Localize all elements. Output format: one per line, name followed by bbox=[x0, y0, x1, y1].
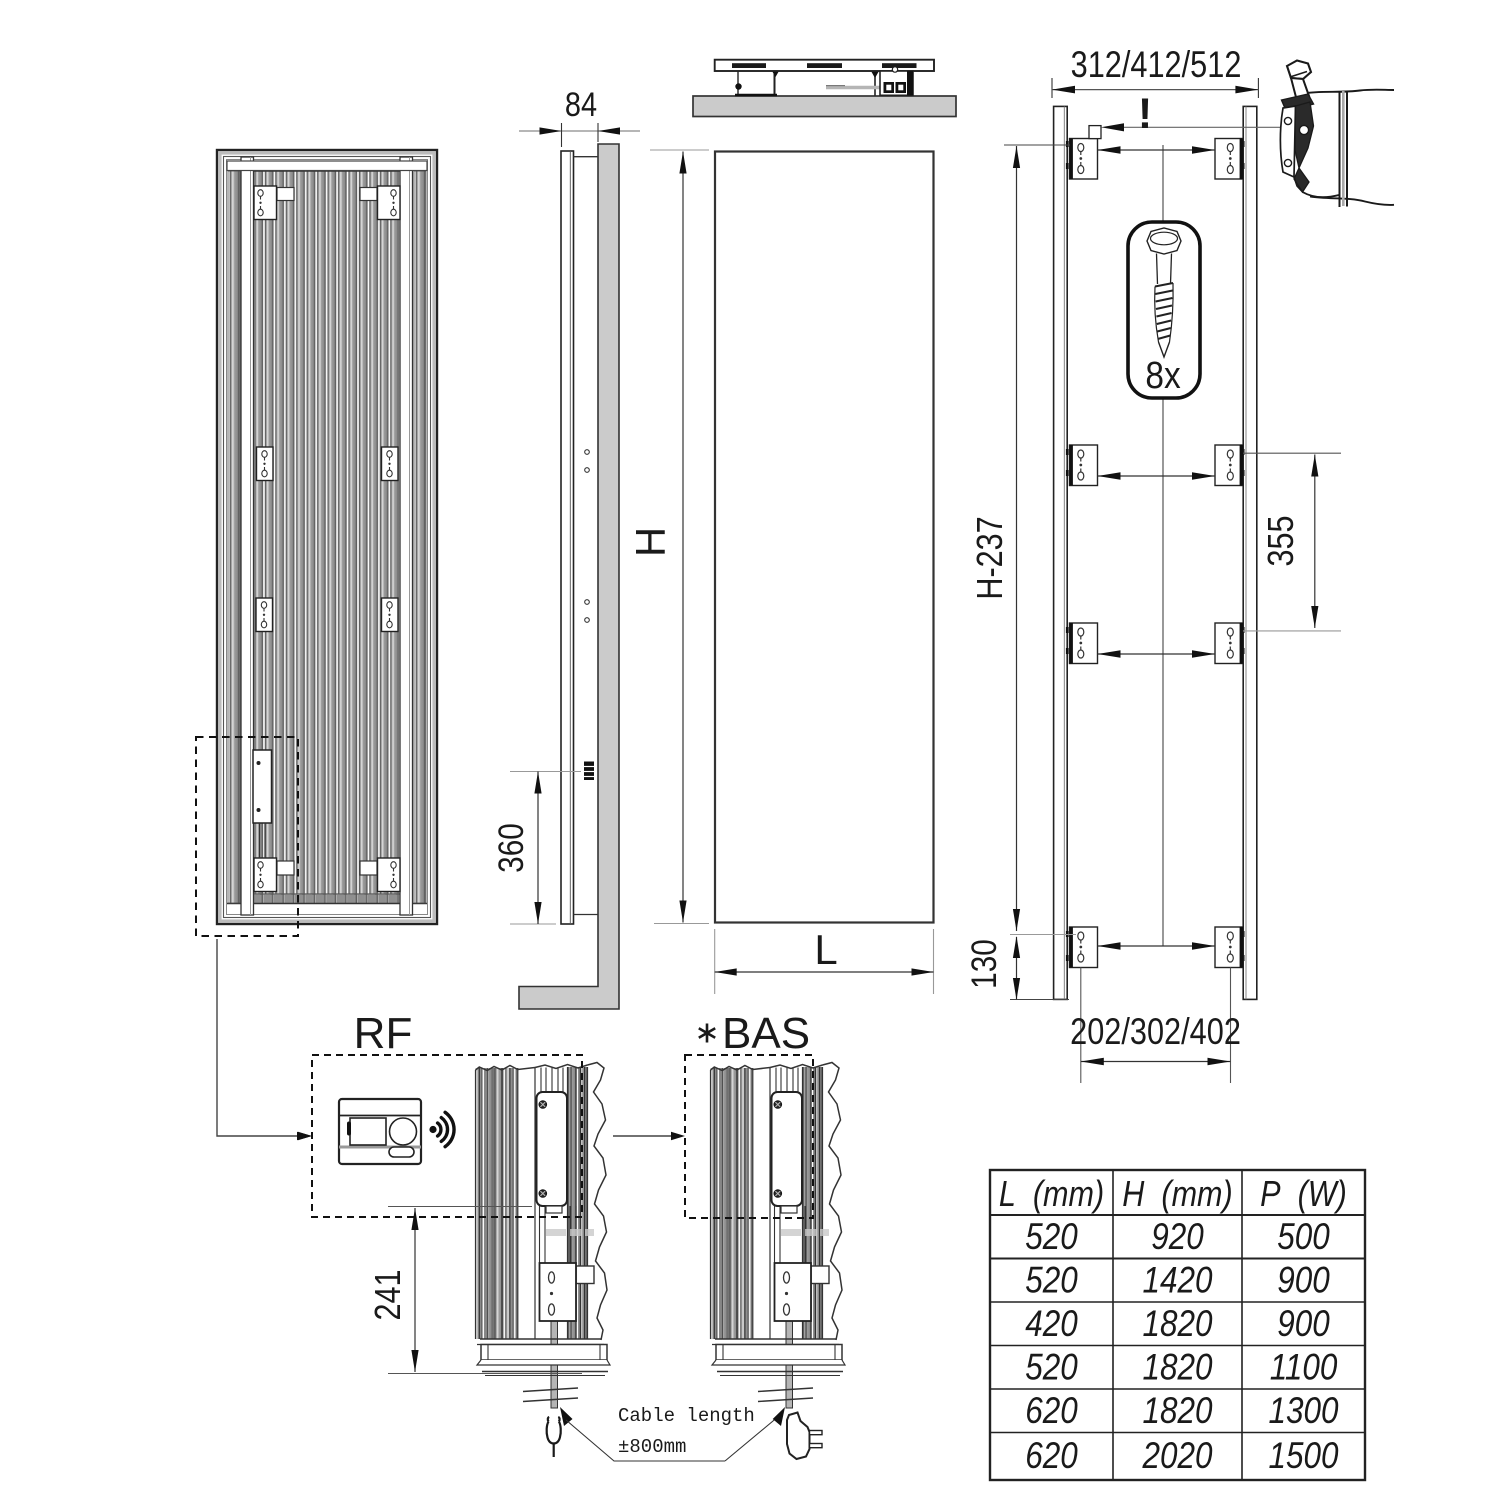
svg-text:420: 420 bbox=[1025, 1304, 1077, 1345]
svg-text:2020: 2020 bbox=[1142, 1436, 1213, 1477]
svg-text:312/412/512: 312/412/512 bbox=[1071, 44, 1242, 85]
svg-text:900: 900 bbox=[1277, 1304, 1329, 1345]
svg-text:920: 920 bbox=[1151, 1217, 1203, 1258]
svg-text:1100: 1100 bbox=[1270, 1347, 1338, 1388]
svg-text:202/302/402: 202/302/402 bbox=[1070, 1011, 1241, 1052]
svg-text:BAS: BAS bbox=[722, 1009, 810, 1058]
svg-text:1820: 1820 bbox=[1143, 1304, 1213, 1345]
svg-text:8x: 8x bbox=[1145, 354, 1180, 396]
svg-text:1300: 1300 bbox=[1269, 1391, 1339, 1432]
svg-text:1820: 1820 bbox=[1143, 1347, 1213, 1388]
svg-text:620: 620 bbox=[1025, 1391, 1077, 1432]
svg-text:900: 900 bbox=[1277, 1260, 1329, 1301]
svg-text:P (W): P (W) bbox=[1260, 1175, 1347, 1215]
svg-text:500: 500 bbox=[1277, 1217, 1329, 1258]
svg-text:84: 84 bbox=[565, 85, 597, 124]
svg-text:!: ! bbox=[1138, 90, 1152, 138]
svg-text:520: 520 bbox=[1025, 1347, 1077, 1388]
svg-text:520: 520 bbox=[1025, 1217, 1077, 1258]
svg-text:±800mm: ±800mm bbox=[618, 1436, 686, 1458]
svg-text:1820: 1820 bbox=[1143, 1391, 1213, 1432]
svg-text:H-237: H-237 bbox=[971, 516, 1011, 599]
svg-text:355: 355 bbox=[1262, 515, 1302, 566]
svg-text:L (mm): L (mm) bbox=[999, 1175, 1104, 1215]
svg-text:130: 130 bbox=[965, 939, 1004, 989]
svg-text:620: 620 bbox=[1025, 1436, 1077, 1477]
svg-text:Cable length: Cable length bbox=[618, 1405, 755, 1427]
svg-text:1420: 1420 bbox=[1143, 1260, 1213, 1301]
svg-text:L: L bbox=[814, 926, 837, 973]
svg-text:1500: 1500 bbox=[1269, 1436, 1339, 1477]
svg-text:H (mm): H (mm) bbox=[1122, 1175, 1232, 1215]
svg-text:RF: RF bbox=[354, 1009, 413, 1058]
svg-text:360: 360 bbox=[492, 823, 531, 873]
svg-text:520: 520 bbox=[1025, 1260, 1077, 1301]
svg-text:241: 241 bbox=[369, 1269, 409, 1320]
svg-text:H: H bbox=[627, 527, 674, 557]
